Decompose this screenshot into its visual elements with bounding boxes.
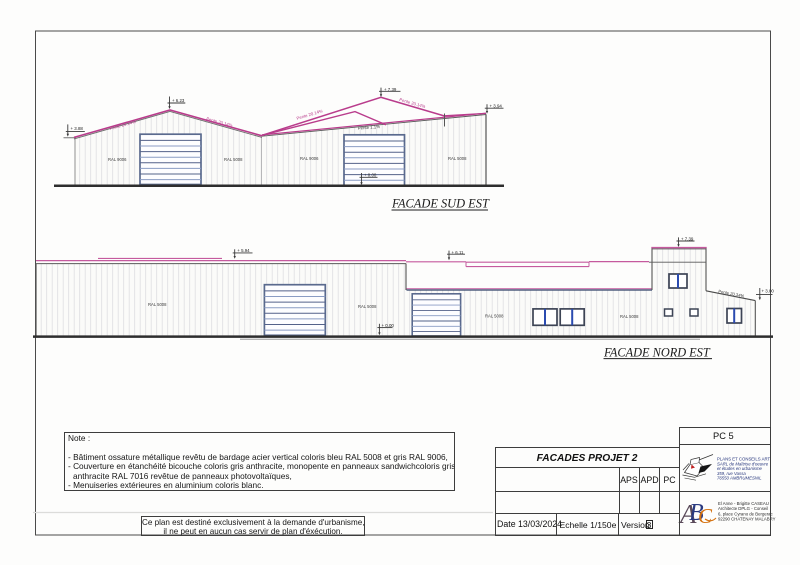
svg-text:+ 6.11: + 6.11 xyxy=(452,250,465,255)
svg-text:+ 0.00: + 0.00 xyxy=(364,172,377,177)
svg-text:RAL 5008: RAL 5008 xyxy=(148,302,167,307)
svg-text:+ 3.88: + 3.88 xyxy=(71,126,84,131)
svg-text:+ 7.39: + 7.39 xyxy=(384,87,397,92)
svg-text:RAL 5008: RAL 5008 xyxy=(358,304,377,309)
svg-text:RAL 5008: RAL 5008 xyxy=(224,157,243,162)
svg-text:RAL 5008: RAL 5008 xyxy=(620,314,639,319)
svg-text:+ 5.94: + 5.94 xyxy=(237,248,250,253)
svg-text:+ 6.23: + 6.23 xyxy=(172,98,185,103)
svg-text:+ 3.00: + 3.00 xyxy=(762,289,775,294)
svg-text:+ 0.00: + 0.00 xyxy=(382,323,395,328)
svg-text:+ 3.94: + 3.94 xyxy=(490,103,503,108)
svg-text:RAL 9006: RAL 9006 xyxy=(108,157,127,162)
svg-text:+ 7.39: + 7.39 xyxy=(681,237,694,242)
svg-text:RAL 5008: RAL 5008 xyxy=(448,156,467,161)
svg-text:RAL 9006: RAL 9006 xyxy=(300,156,319,161)
svg-text:RAL 5008: RAL 5008 xyxy=(485,314,504,319)
svg-text:Pente 20.14%: Pente 20.14% xyxy=(296,108,323,121)
svg-text:FACADE SUD EST: FACADE SUD EST xyxy=(391,197,490,211)
svg-text:FACADE NORD EST: FACADE NORD EST xyxy=(603,345,711,359)
